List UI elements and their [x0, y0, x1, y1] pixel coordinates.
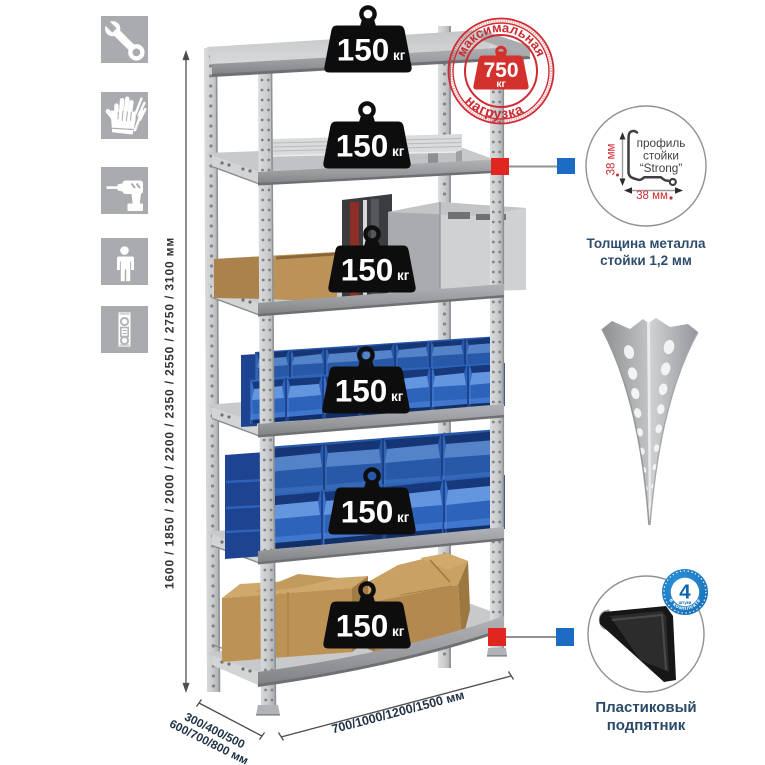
svg-text:Толщина металла: Толщина металла: [586, 236, 706, 251]
svg-text:штуки: штуки: [679, 600, 692, 605]
svg-text:подпятник: подпятник: [607, 717, 686, 734]
svg-text:“Strong”: “Strong”: [640, 161, 683, 175]
svg-text:стойки 1,2 мм: стойки 1,2 мм: [600, 253, 692, 268]
svg-text:38 мм: 38 мм: [636, 190, 668, 202]
svg-text:кг: кг: [496, 78, 506, 90]
svg-text:Пластиковый: Пластиковый: [595, 699, 696, 716]
svg-text:38 мм: 38 мм: [606, 144, 618, 176]
svg-text:1600 / 1850 / 2000 / 2200 / 23: 1600 / 1850 / 2000 / 2200 / 2350 / 2550 …: [163, 237, 177, 589]
